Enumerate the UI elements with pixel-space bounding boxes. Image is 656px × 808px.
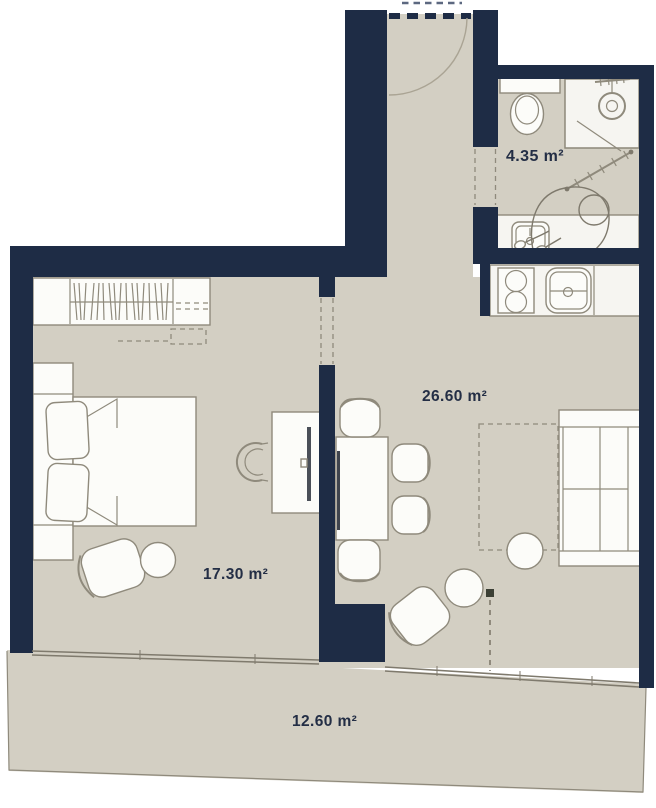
floor-plan-svg — [0, 0, 656, 808]
round-side-table — [445, 569, 483, 607]
bathroom-door-gap — [473, 147, 498, 207]
dining-chair-right-1 — [392, 444, 430, 482]
stove — [498, 268, 534, 313]
desk — [272, 412, 322, 513]
dining-table — [336, 437, 388, 540]
kitchen-side-wall — [480, 264, 490, 316]
partition-wall — [319, 365, 335, 608]
floor-plan: 4.35 m² 26.60 m² 17.30 m² 12.60 m² — [0, 0, 656, 808]
mattress — [73, 397, 196, 526]
corridor-left-wall — [345, 10, 387, 247]
dining-chair-top — [340, 399, 380, 437]
monitor-stand — [301, 459, 307, 467]
pillow — [46, 463, 90, 522]
bedroom-area-label: 17.30 m² — [203, 566, 268, 584]
dining-chair-right-2 — [392, 496, 430, 534]
round-stool — [141, 543, 176, 578]
corridor-floor — [387, 14, 473, 290]
kitchen-sink — [546, 268, 591, 313]
wall-tv — [337, 451, 340, 530]
living-area-label: 26.60 m² — [422, 388, 487, 406]
terrace-area-label: 12.60 m² — [292, 713, 357, 731]
kitchen-counter — [490, 265, 640, 316]
bathroom-bottom-wall — [473, 248, 654, 264]
left-wall — [10, 277, 33, 653]
bathroom-area-label: 4.35 m² — [506, 148, 564, 166]
bedroom-top-wall — [10, 246, 387, 277]
dining-chair-bottom — [338, 540, 380, 581]
partition-stub — [319, 277, 335, 297]
headboard-platform — [33, 363, 73, 560]
downpipe-marker — [486, 589, 494, 597]
right-wall — [639, 65, 654, 688]
pillow — [46, 401, 90, 460]
sofa-bed — [559, 410, 641, 566]
bathroom-top-wall — [473, 65, 654, 79]
partition-bottom-block — [319, 604, 385, 662]
coffee-table — [507, 533, 543, 569]
